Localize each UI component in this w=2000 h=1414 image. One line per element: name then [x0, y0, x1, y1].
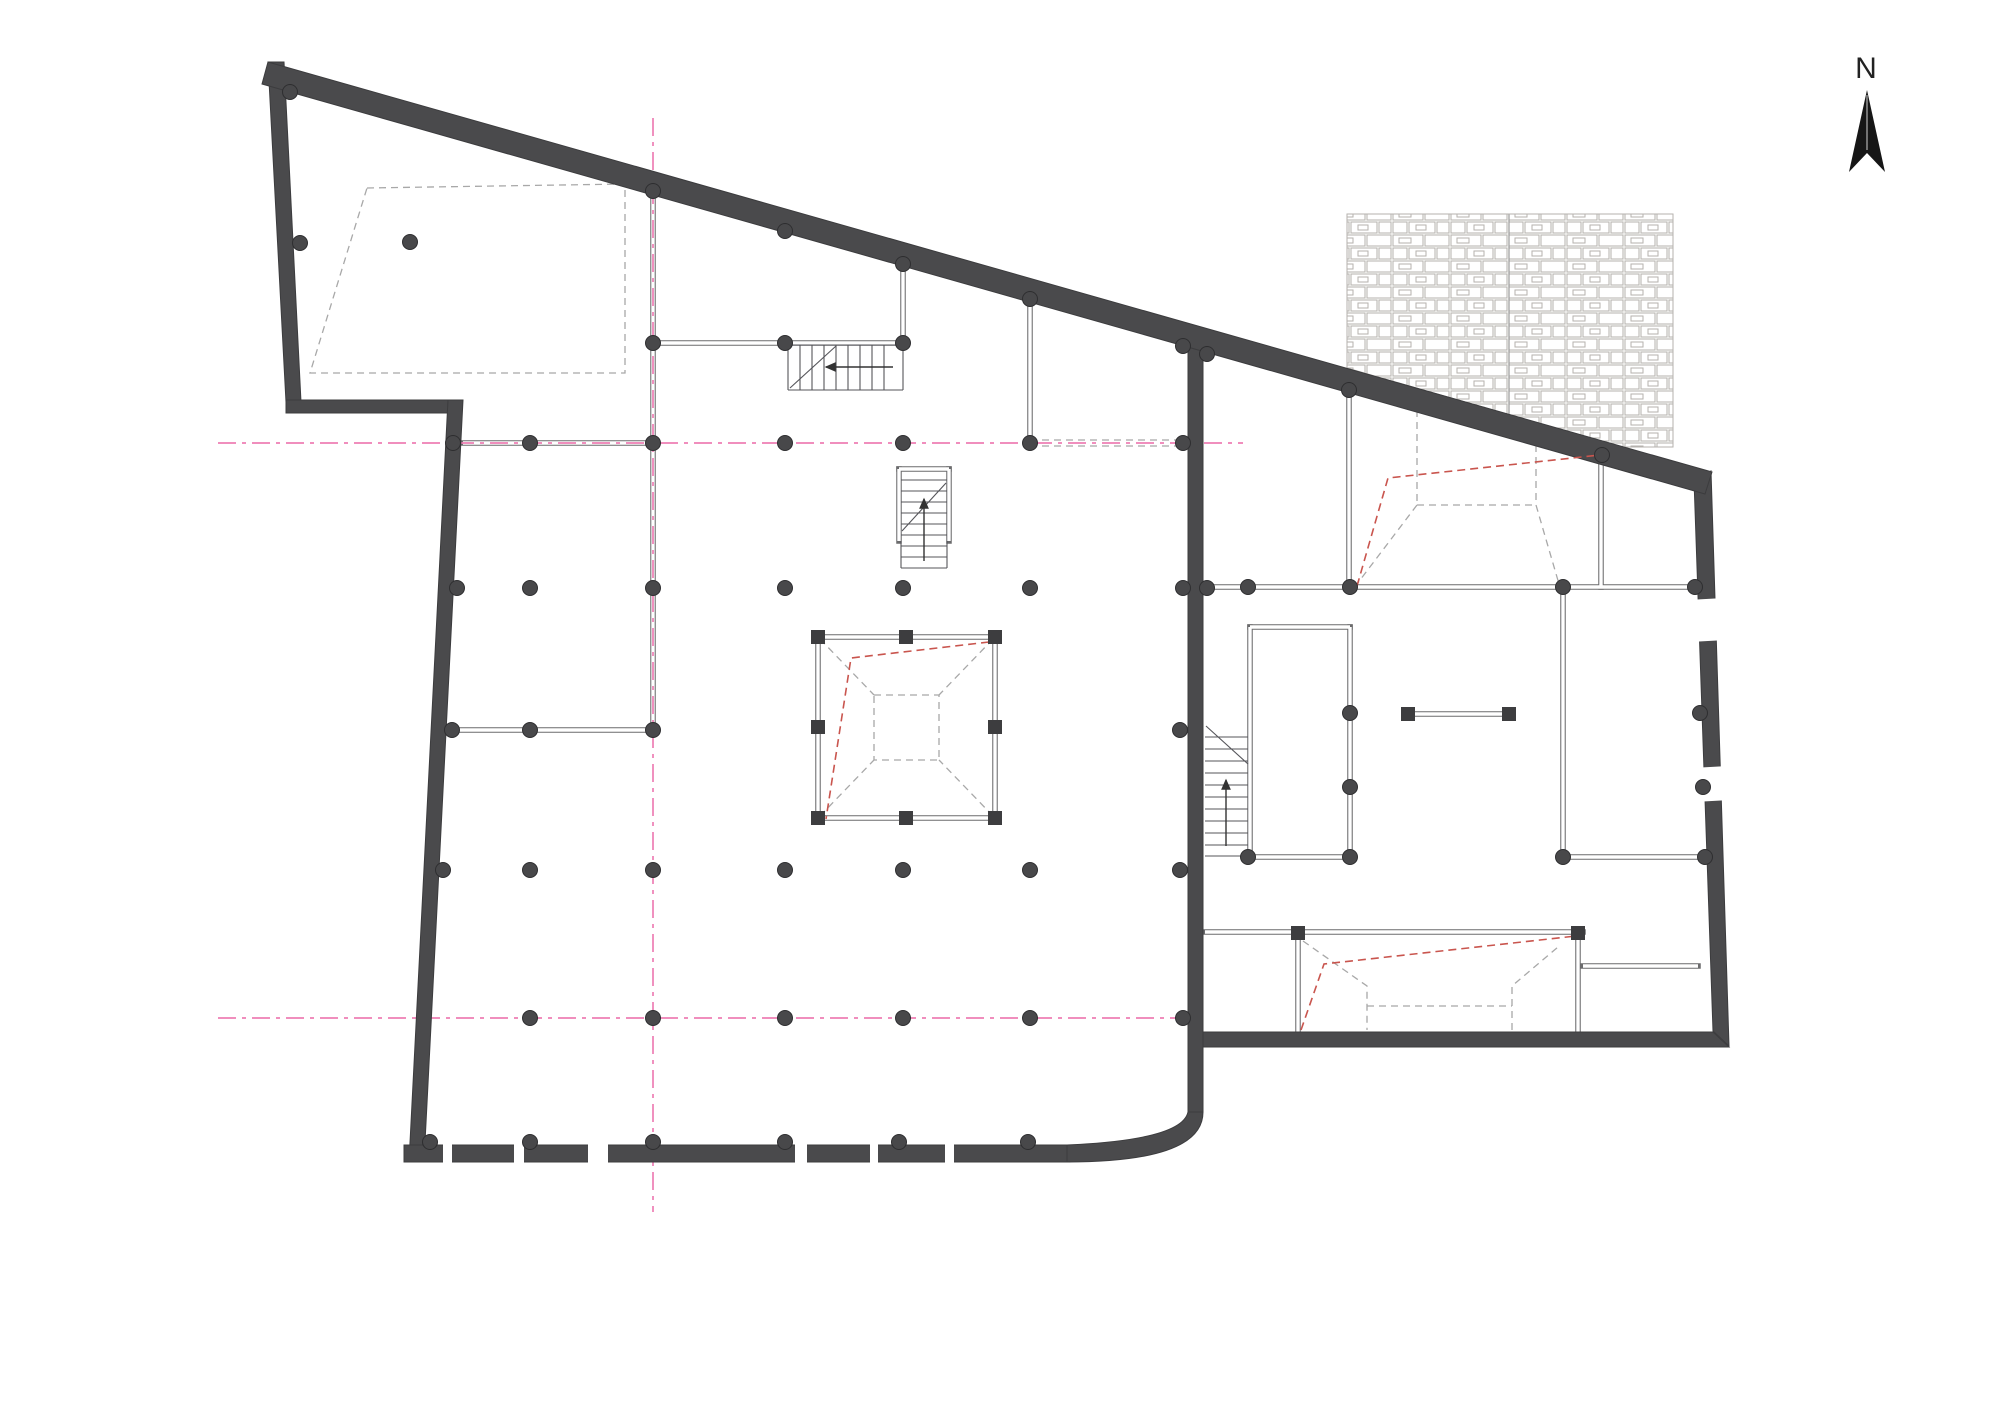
gray-dashed-projection — [1303, 941, 1367, 1030]
column-dot — [896, 336, 911, 351]
column-dot — [896, 863, 911, 878]
column-dot — [1176, 436, 1191, 451]
exterior-wall-wing-south — [1203, 1032, 1729, 1047]
column-dot — [778, 1135, 793, 1150]
column-dot — [1173, 723, 1188, 738]
column-dot — [523, 1011, 538, 1026]
column-dot — [1241, 850, 1256, 865]
column-dot — [1200, 581, 1215, 596]
column-dot — [1176, 581, 1191, 596]
exterior-wall-west-lower — [409, 400, 463, 1162]
window-opening — [443, 1141, 452, 1166]
column-dot — [1023, 581, 1038, 596]
column-dot — [1342, 383, 1357, 398]
column-dot — [423, 1135, 438, 1150]
window-opening — [795, 1141, 807, 1166]
column-dot — [523, 863, 538, 878]
column-dot — [1023, 292, 1038, 307]
floor-plan-page: N — [0, 0, 2000, 1414]
stair-tread-line — [1206, 726, 1248, 764]
column-dot — [1556, 580, 1571, 595]
column-dot — [646, 863, 661, 878]
column-dot — [1595, 448, 1610, 463]
column-dot — [892, 1135, 907, 1150]
column-dot — [436, 863, 451, 878]
column-dot — [1343, 706, 1358, 721]
column-dot — [896, 436, 911, 451]
column-dot — [446, 436, 461, 451]
column-dot — [1343, 850, 1358, 865]
column-dot — [896, 581, 911, 596]
column-marker-square — [1571, 926, 1585, 940]
column-marker-square — [811, 720, 825, 734]
stone-paving-terrace — [1347, 214, 1673, 447]
column-marker-square — [899, 630, 913, 644]
column-dot — [1023, 1011, 1038, 1026]
column-dot — [1173, 863, 1188, 878]
column-dot — [778, 581, 793, 596]
column-dot — [646, 184, 661, 199]
column-dot — [1200, 347, 1215, 362]
window-opening — [588, 1141, 608, 1166]
column-dot — [646, 336, 661, 351]
core-wall-central — [1188, 335, 1203, 1112]
exterior-wall-south-curve — [1067, 1112, 1203, 1162]
column-dot — [646, 723, 661, 738]
column-dot — [1023, 436, 1038, 451]
gray-dashed-projection — [1536, 505, 1559, 584]
column-dot — [293, 236, 308, 251]
column-dot — [778, 436, 793, 451]
column-dot — [1021, 1135, 1036, 1150]
gray-dashed-projection — [820, 639, 874, 695]
wall-openings — [443, 598, 1730, 1166]
column-dot — [450, 581, 465, 596]
column-dot — [1176, 1011, 1191, 1026]
column-dot — [646, 1011, 661, 1026]
window-opening — [945, 1141, 954, 1166]
column-marker-square — [899, 811, 913, 825]
column-dot — [1693, 706, 1708, 721]
red-dashed-drain-line — [1357, 455, 1600, 586]
column-dot — [523, 1135, 538, 1150]
red-dashed-drain-line — [1301, 936, 1576, 1030]
column-dot — [778, 1011, 793, 1026]
column-dot — [523, 723, 538, 738]
stone-paving-texture — [1347, 214, 1673, 447]
column-dot — [896, 1011, 911, 1026]
column-dot — [1688, 580, 1703, 595]
gray-dashed-projection — [874, 695, 939, 760]
gray-dashed-projection — [310, 184, 625, 373]
column-dot — [1698, 850, 1713, 865]
column-dot — [1343, 780, 1358, 795]
column-marker-square — [1401, 707, 1415, 721]
column-dot — [1696, 780, 1711, 795]
column-dot — [283, 85, 298, 100]
column-dot — [1556, 850, 1571, 865]
stair-lines — [788, 345, 1248, 856]
north-label: N — [1855, 52, 1877, 85]
column-marker-square — [988, 720, 1002, 734]
north-arrow: N — [1849, 52, 1885, 172]
gray-dashed-projection — [939, 760, 993, 816]
column-marker-square — [811, 811, 825, 825]
exterior-wall-south — [404, 1145, 1070, 1162]
column-marker-square — [1291, 926, 1305, 940]
column-dot — [896, 257, 911, 272]
column-dot — [646, 581, 661, 596]
window-opening — [870, 1141, 878, 1166]
column-dot — [1241, 580, 1256, 595]
column-marker-square — [988, 811, 1002, 825]
column-dot — [646, 1135, 661, 1150]
column-marker-square — [811, 630, 825, 644]
column-dot — [646, 436, 661, 451]
window-opening — [1688, 598, 1726, 642]
column-dot — [523, 581, 538, 596]
red-dashed-lines — [826, 455, 1600, 1030]
column-marker-square — [1502, 707, 1516, 721]
gray-dashed-projection — [1357, 505, 1417, 584]
axis-grid-lines — [218, 118, 1243, 1212]
column-marker-square — [988, 630, 1002, 644]
exterior-wall-west-upper — [268, 62, 301, 402]
column-dot — [778, 863, 793, 878]
exterior-wall-east — [1694, 471, 1729, 1046]
column-dot — [1343, 580, 1358, 595]
floor-plan-canvas: N — [0, 0, 2000, 1414]
column-dot — [445, 723, 460, 738]
column-dot — [778, 224, 793, 239]
gray-dashed-projection — [1512, 947, 1558, 1030]
exterior-wall-notch — [286, 400, 448, 413]
column-dot — [1023, 863, 1038, 878]
column-dot — [778, 336, 793, 351]
column-dot — [403, 235, 418, 250]
column-dot — [1176, 339, 1191, 354]
column-dot — [523, 436, 538, 451]
